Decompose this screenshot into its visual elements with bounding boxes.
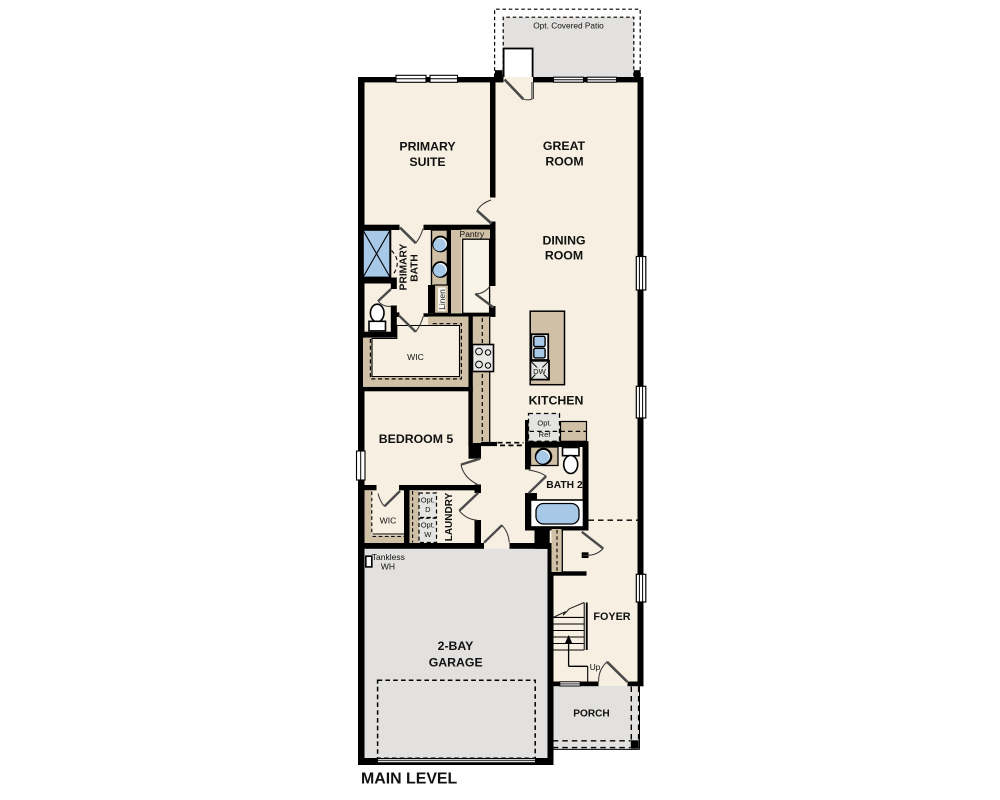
svg-text:MAIN LEVEL: MAIN LEVEL — [361, 771, 458, 788]
svg-text:D: D — [425, 505, 431, 514]
svg-text:ROOM: ROOM — [545, 155, 583, 169]
svg-text:Opt.: Opt. — [421, 496, 435, 505]
svg-text:DINING: DINING — [542, 233, 585, 247]
svg-text:BATH: BATH — [410, 254, 421, 282]
svg-text:GARAGE: GARAGE — [429, 656, 483, 670]
svg-text:W: W — [424, 530, 432, 539]
svg-text:WH: WH — [381, 562, 395, 572]
svg-text:Opt.: Opt. — [421, 521, 435, 530]
svg-text:KITCHEN: KITCHEN — [529, 394, 584, 408]
svg-text:Linen: Linen — [437, 289, 447, 310]
svg-text:ROOM: ROOM — [545, 249, 583, 263]
svg-text:Tankless: Tankless — [372, 552, 405, 562]
svg-text:GREAT: GREAT — [543, 139, 586, 153]
svg-text:SUITE: SUITE — [409, 155, 445, 169]
svg-text:Opt.: Opt. — [537, 419, 551, 428]
svg-text:BEDROOM 5: BEDROOM 5 — [379, 432, 454, 446]
svg-text:PORCH: PORCH — [573, 709, 609, 720]
svg-text:PRIMARY: PRIMARY — [399, 244, 410, 291]
svg-text:WIC: WIC — [380, 516, 397, 526]
svg-text:LAUNDRY: LAUNDRY — [444, 492, 455, 541]
svg-text:2-BAY: 2-BAY — [438, 639, 474, 653]
svg-text:DW: DW — [533, 367, 546, 376]
svg-text:Pantry: Pantry — [459, 229, 485, 239]
svg-text:WIC: WIC — [407, 352, 424, 362]
svg-text:Opt. Covered Patio: Opt. Covered Patio — [533, 21, 604, 31]
svg-text:FOYER: FOYER — [593, 611, 630, 623]
svg-text:BATH 2: BATH 2 — [546, 480, 583, 491]
svg-text:Ref: Ref — [539, 430, 552, 439]
svg-text:PRIMARY: PRIMARY — [399, 139, 455, 153]
svg-text:Up: Up — [590, 662, 601, 672]
